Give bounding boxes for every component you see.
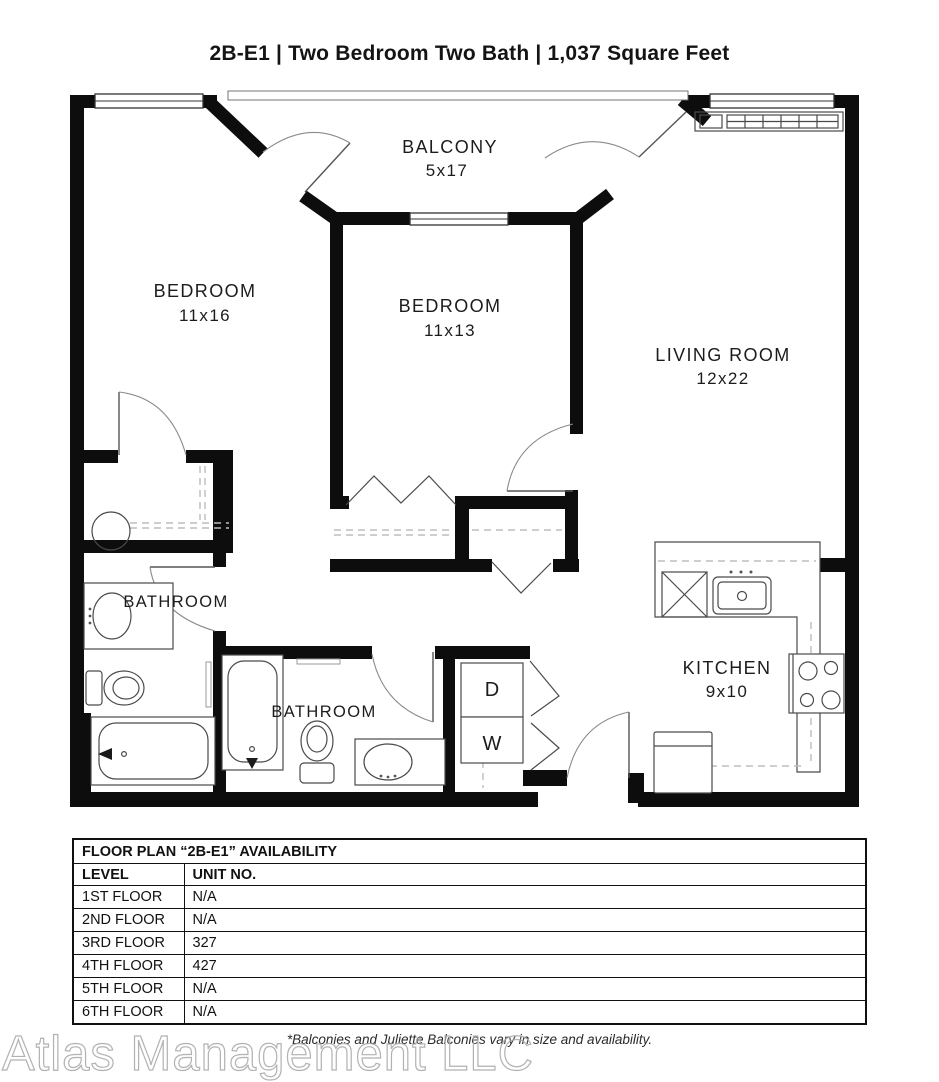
- balcony-door-right: [545, 112, 686, 158]
- bathroom1-toilet: [86, 671, 144, 705]
- room-label-bathroom1: BATHROOM: [123, 593, 228, 611]
- unit-cell: N/A: [184, 1001, 866, 1025]
- kitchen-sink: [713, 571, 771, 615]
- table-row: 6TH FLOOR N/A: [73, 1001, 866, 1025]
- bathroom2-towel-bar: [297, 659, 340, 664]
- level-cell: 2ND FLOOR: [73, 909, 184, 932]
- table-row: 1ST FLOOR N/A: [73, 886, 866, 909]
- window-bedroom1: [95, 94, 203, 108]
- washer-label: W: [483, 733, 502, 755]
- unit-cell: N/A: [184, 909, 866, 932]
- availability-table: FLOOR PLAN “2B-E1” AVAILABILITY LEVEL UN…: [72, 838, 867, 1025]
- entry-door: [567, 712, 629, 778]
- level-cell: 5TH FLOOR: [73, 978, 184, 1001]
- room-dims-living-room: 12x22: [696, 369, 749, 388]
- bathroom2-vanity-sink: [355, 739, 445, 785]
- bathroom1-mirror: [206, 662, 211, 707]
- table-row: 2ND FLOOR N/A: [73, 909, 866, 932]
- room-label-living-room: LIVING ROOM: [655, 345, 790, 365]
- room-dims-bedroom1: 11x16: [179, 306, 231, 325]
- availability-table-header-row: LEVEL UNIT NO.: [73, 864, 866, 886]
- bedroom2-door: [507, 424, 573, 491]
- level-cell: 6TH FLOOR: [73, 1001, 184, 1025]
- bedroom1-door: [119, 392, 186, 455]
- column-header-unit-no: UNIT NO.: [184, 864, 866, 886]
- floor-plan-sheet: 2B-E1 | Two Bedroom Two Bath | 1,037 Squ…: [0, 0, 939, 1080]
- kitchen-stove: [789, 654, 844, 713]
- watermark: Atlas Management LLC: [2, 1026, 534, 1082]
- room-dims-balcony: 5x17: [426, 161, 468, 180]
- room-label-bedroom2: BEDROOM: [399, 296, 502, 316]
- unit-cell: 427: [184, 955, 866, 978]
- dryer-label: D: [485, 679, 499, 701]
- room-label-balcony: BALCONY: [402, 137, 498, 157]
- bathroom1-bathtub: [91, 717, 215, 785]
- kitchen-refrigerator: [654, 732, 712, 793]
- unit-cell: 327: [184, 932, 866, 955]
- room-label-kitchen: KITCHEN: [683, 658, 772, 678]
- room-label-bathroom2: BATHROOM: [271, 703, 376, 721]
- laundry-closet-bifold: [530, 661, 559, 770]
- table-row: 4TH FLOOR 427: [73, 955, 866, 978]
- room-dims-kitchen: 9x10: [706, 682, 748, 701]
- unit-cell: N/A: [184, 978, 866, 1001]
- availability-table-title-row: FLOOR PLAN “2B-E1” AVAILABILITY: [73, 839, 866, 864]
- level-cell: 3RD FLOOR: [73, 932, 184, 955]
- balcony-railing: [228, 91, 688, 100]
- window-bedroom2: [410, 213, 508, 225]
- table-row: 3RD FLOOR 327: [73, 932, 866, 955]
- bedroom2-closet-bifold: [346, 476, 456, 505]
- balcony-door-left: [263, 132, 350, 192]
- unit-cell: N/A: [184, 886, 866, 909]
- entry-closet-bifold: [492, 562, 551, 593]
- bathroom2-toilet: [300, 721, 334, 783]
- room-label-bedroom1: BEDROOM: [154, 281, 257, 301]
- level-cell: 4TH FLOOR: [73, 955, 184, 978]
- availability-table-title: FLOOR PLAN “2B-E1” AVAILABILITY: [73, 839, 866, 864]
- bathroom2-door: [372, 652, 433, 722]
- window-living-room: [710, 94, 834, 108]
- table-row: 5TH FLOOR N/A: [73, 978, 866, 1001]
- level-cell: 1ST FLOOR: [73, 886, 184, 909]
- room-dims-bedroom2: 11x13: [424, 321, 476, 340]
- baseboard-heater: [695, 112, 843, 131]
- column-header-level: LEVEL: [73, 864, 184, 886]
